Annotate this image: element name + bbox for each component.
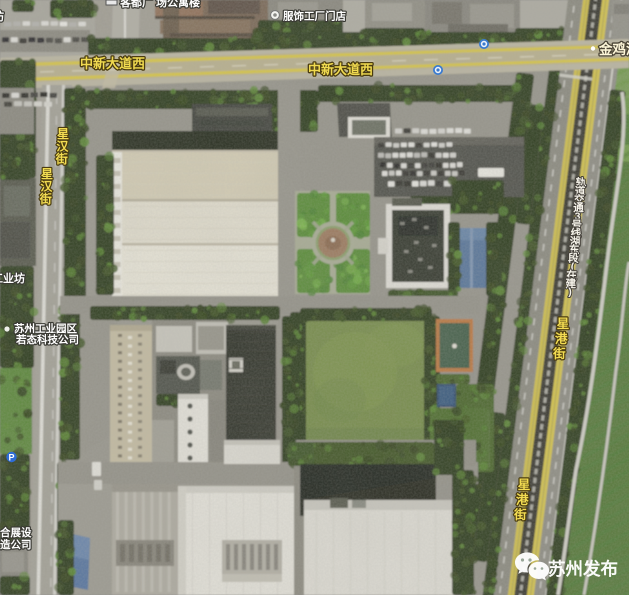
svg-text:造公司: 造公司 [0, 538, 32, 551]
svg-text:坊: 坊 [0, 9, 4, 23]
svg-text:中新大道西: 中新大道西 [80, 56, 145, 71]
svg-text:街: 街 [552, 346, 566, 361]
svg-text:客都广 场公寓楼: 客都广 场公寓楼 [119, 0, 200, 9]
svg-text:): ) [568, 286, 572, 298]
svg-text:港: 港 [555, 331, 568, 346]
svg-text:街: 街 [55, 151, 68, 166]
svg-text:街: 街 [513, 507, 527, 522]
svg-text:若态科技公司: 若态科技公司 [15, 333, 79, 346]
svg-text:金鸡湖: 金鸡湖 [598, 41, 629, 57]
svg-text:苏州发布: 苏州发布 [548, 559, 618, 579]
svg-text:中新大道西: 中新大道西 [308, 62, 373, 77]
svg-text:服饰工厂门店: 服饰工厂门店 [283, 10, 346, 23]
svg-text:工业坊: 工业坊 [0, 271, 25, 285]
svg-text:P: P [8, 453, 14, 463]
svg-text:星: 星 [557, 317, 570, 331]
svg-text:合展设: 合展设 [0, 526, 32, 539]
svg-text:街: 街 [39, 191, 52, 206]
svg-text:港: 港 [516, 492, 529, 507]
svg-text:星: 星 [518, 478, 531, 492]
